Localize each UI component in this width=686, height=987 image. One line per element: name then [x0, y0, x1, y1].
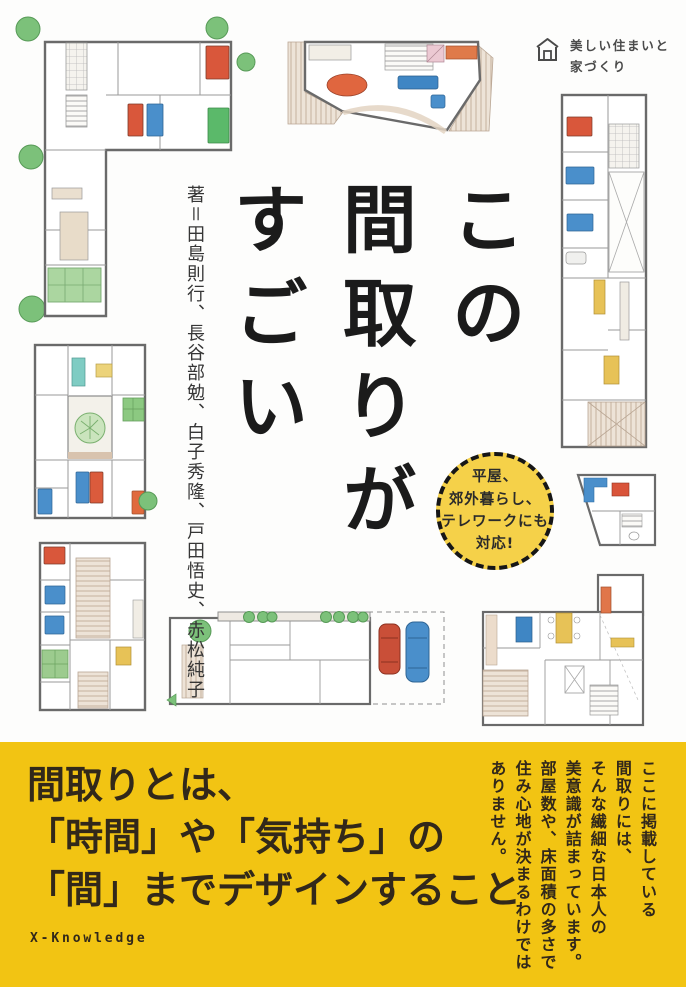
floorplan-trapezoid-house	[288, 42, 493, 134]
floorplan-two-story-house	[483, 575, 643, 725]
author-credit: 著＝田島則行、長谷部勉、白子秀隆、戸田悟史、赤松純子	[181, 185, 207, 700]
publisher-name: X-Knowledge	[30, 931, 148, 946]
band-note: ここに掲載している 間取りには、 そんな繊細な日本人の 美意識が詰まっています。…	[484, 760, 660, 974]
floorplan-courtyard-house	[35, 345, 157, 518]
band-headline: 間取りとは、 「時間」や「気持ち」の 「間」までデザインすること	[27, 760, 521, 917]
bottom-band: 間取りとは、 「時間」や「気持ち」の 「間」までデザインすること X-Knowl…	[0, 742, 686, 987]
floorplan-narrow-house	[562, 95, 646, 447]
publisher-logo-text: 美しい住まいと 家づくり	[570, 36, 670, 77]
floorplan-tatami-house	[40, 543, 145, 710]
book-cover: 美しい住まいと 家づくり この 間取りが すごい 著＝田島則行、長谷部勉、白子秀…	[0, 0, 686, 987]
floorplan-house-with-parking	[167, 612, 444, 707]
feature-badge: 平屋、 郊外暮らし、 テレワークにも 対応!	[436, 452, 554, 570]
floorplan-small-house	[578, 475, 655, 545]
feature-badge-text: 平屋、 郊外暮らし、 テレワークにも 対応!	[441, 466, 549, 556]
house-icon	[534, 36, 561, 63]
publisher-logo: 美しい住まいと 家づくり	[534, 36, 670, 77]
